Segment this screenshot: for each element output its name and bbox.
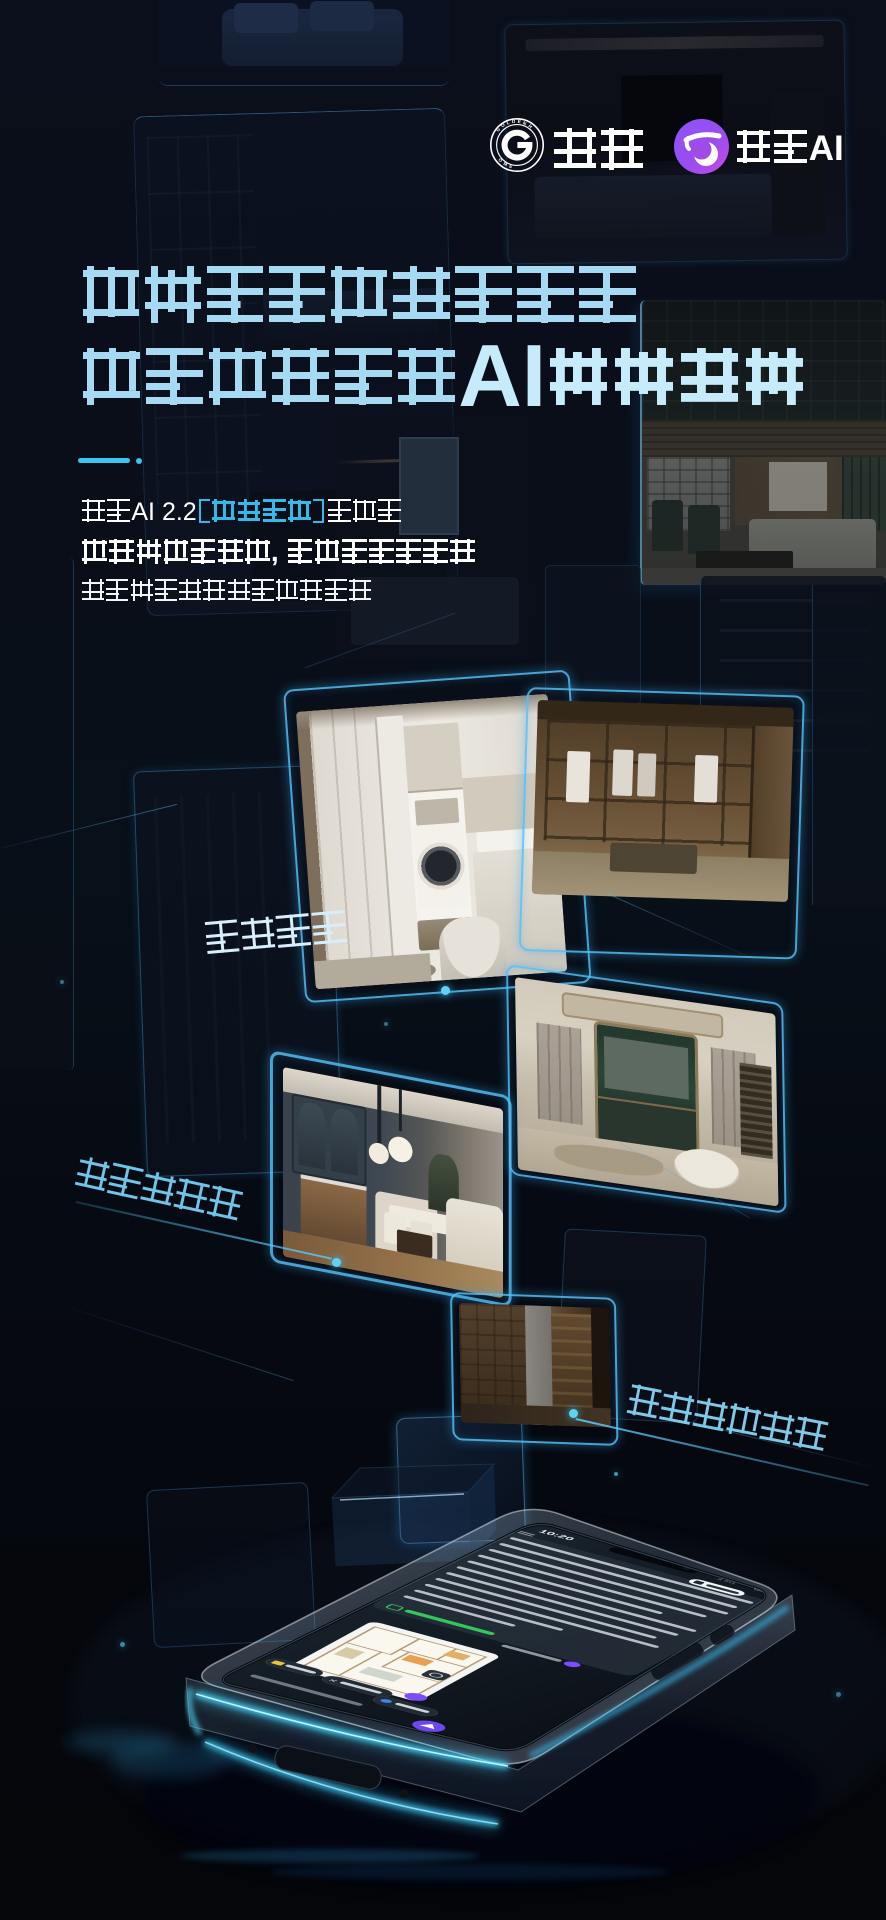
svg-text:H: H [527, 123, 533, 129]
svg-text:O: O [500, 122, 506, 128]
svg-text:L: L [506, 120, 510, 126]
svg-text:E: E [517, 119, 521, 124]
svg-text:M: M [503, 161, 509, 167]
svg-text:G: G [495, 126, 501, 132]
svg-text:E: E [509, 164, 513, 170]
